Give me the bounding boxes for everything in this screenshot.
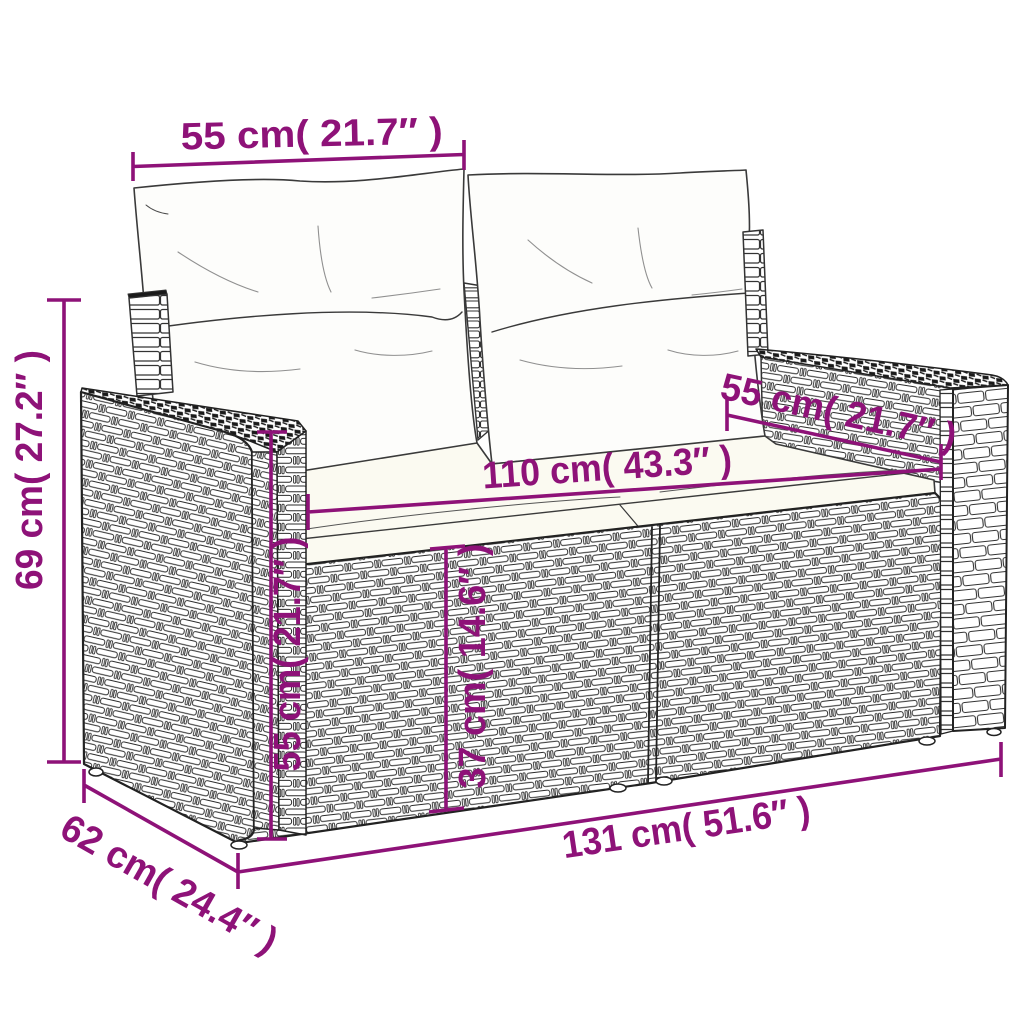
svg-text:69 cm( 27.2″ ): 69 cm( 27.2″ ): [9, 350, 51, 590]
svg-text:55 cm( 21.7″ ): 55 cm( 21.7″ ): [267, 537, 309, 772]
svg-text:55 cm( 21.7″ ): 55 cm( 21.7″ ): [180, 111, 443, 159]
svg-text:37 cm( 14.6″ ): 37 cm( 14.6″ ): [452, 544, 494, 789]
